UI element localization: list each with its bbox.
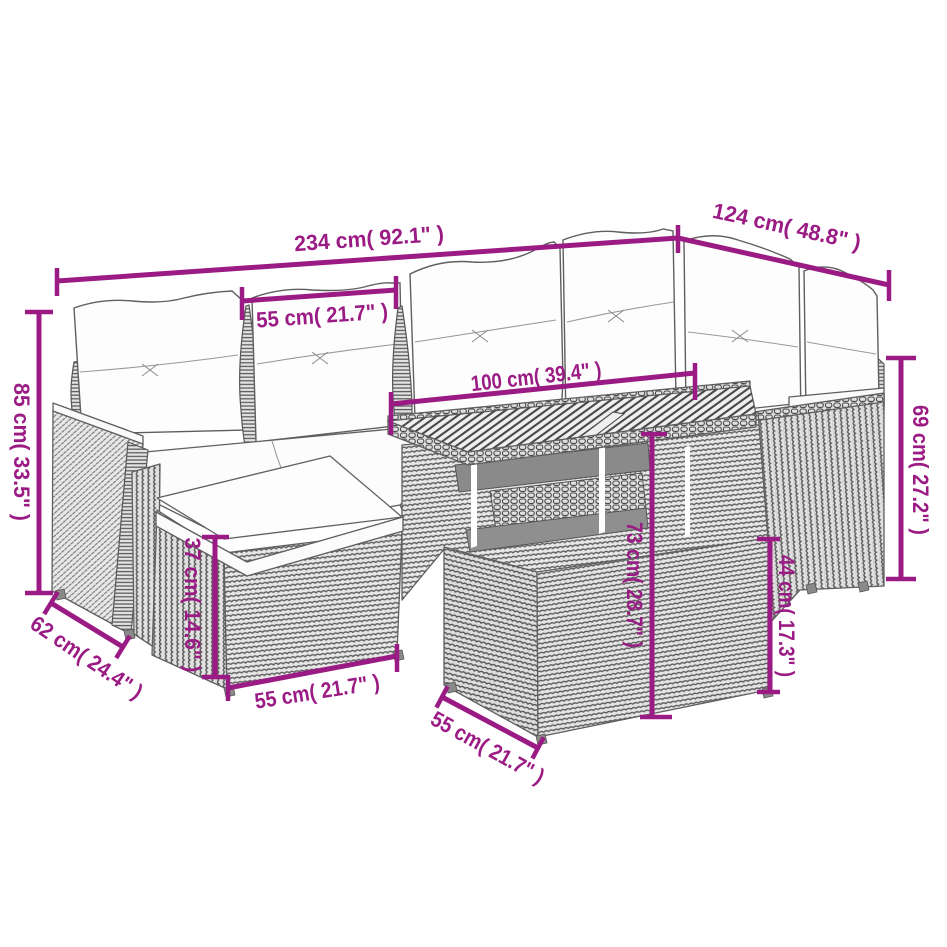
svg-text:73 cm( 28.7" ): 73 cm( 28.7" ) <box>622 522 647 648</box>
svg-text:85 cm( 33.5" ): 85 cm( 33.5" ) <box>9 383 34 521</box>
svg-text:37 cm( 14.6" ): 37 cm( 14.6" ) <box>180 538 205 673</box>
svg-text:44 cm( 17.3" ): 44 cm( 17.3" ) <box>774 555 799 677</box>
svg-text:69 cm( 27.2" ): 69 cm( 27.2" ) <box>908 405 933 535</box>
